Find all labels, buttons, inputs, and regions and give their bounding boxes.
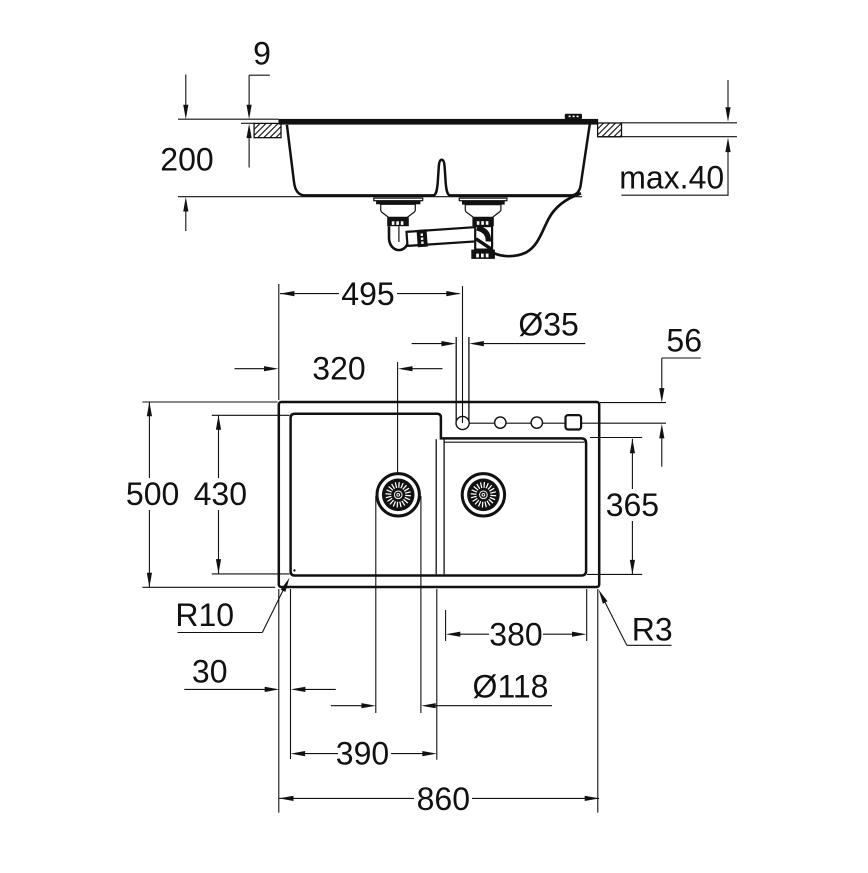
svg-text:Ø118: Ø118: [473, 668, 549, 704]
svg-text:max.40: max.40: [619, 160, 724, 196]
svg-text:R10: R10: [175, 597, 234, 633]
svg-text:390: 390: [336, 735, 389, 771]
svg-text:380: 380: [489, 616, 542, 652]
svg-text:320: 320: [312, 351, 365, 387]
svg-text:Ø35: Ø35: [518, 306, 578, 342]
svg-text:56: 56: [666, 322, 702, 358]
svg-text:365: 365: [606, 487, 659, 523]
svg-text:495: 495: [341, 276, 394, 312]
svg-text:500: 500: [126, 476, 179, 512]
svg-text:430: 430: [194, 476, 247, 512]
svg-text:860: 860: [417, 781, 470, 817]
svg-text:200: 200: [160, 142, 213, 178]
svg-text:30: 30: [192, 654, 228, 690]
svg-text:9: 9: [253, 36, 271, 72]
svg-text:R3: R3: [632, 611, 673, 647]
